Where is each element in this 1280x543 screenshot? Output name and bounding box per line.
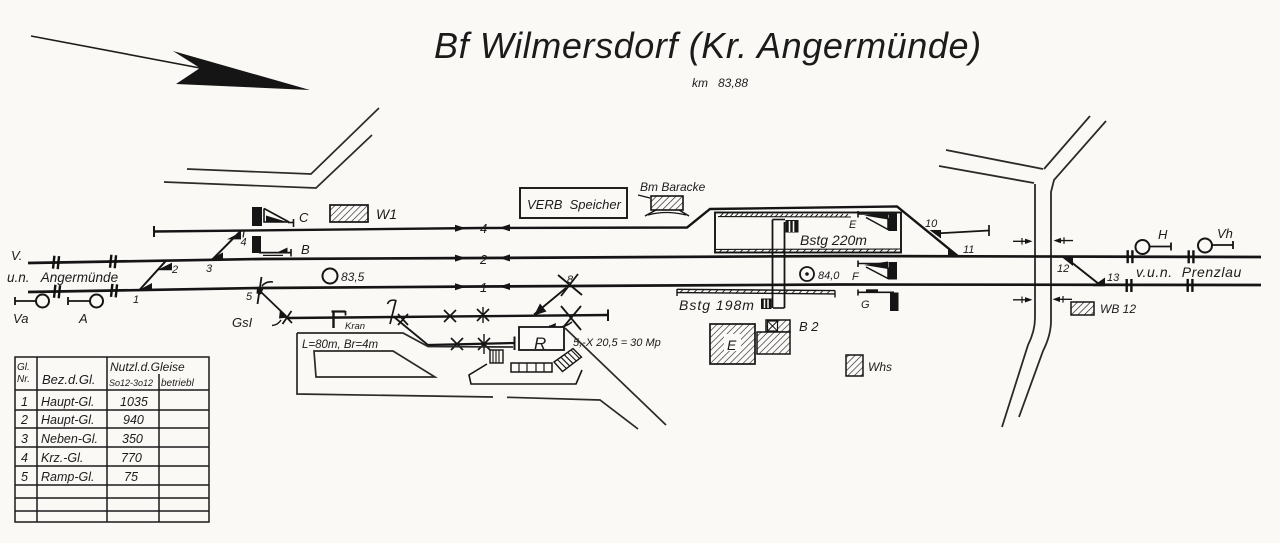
svg-text:G: G	[861, 299, 870, 311]
svg-text:Ramp-Gl.: Ramp-Gl.	[41, 470, 94, 484]
svg-text:Haupt-Gl.: Haupt-Gl.	[41, 413, 95, 427]
svg-text:Bf Wilmersdorf (Kr. Angermünde: Bf Wilmersdorf (Kr. Angermünde)	[434, 25, 982, 66]
svg-text:4: 4	[241, 237, 247, 249]
svg-text:13: 13	[1107, 272, 1120, 284]
svg-text:Gl.: Gl.	[17, 362, 30, 373]
svg-text:R: R	[534, 334, 546, 353]
svg-text:1035: 1035	[120, 395, 148, 409]
svg-text:3: 3	[21, 432, 28, 446]
svg-text:v.u.n. Prenzlau: v.u.n. Prenzlau	[1136, 264, 1242, 280]
svg-text:1: 1	[21, 395, 28, 409]
svg-text:E: E	[849, 219, 857, 231]
svg-text:10: 10	[925, 218, 938, 230]
svg-text:E: E	[727, 337, 737, 353]
svg-text:5: 5	[246, 291, 253, 303]
svg-text:1: 1	[133, 294, 139, 306]
svg-text:km 83,88: km 83,88	[692, 76, 748, 90]
svg-text:4: 4	[480, 221, 487, 236]
svg-text:Bez.d.Gl.: Bez.d.Gl.	[42, 372, 95, 387]
svg-text:H: H	[1158, 227, 1168, 242]
svg-text:350: 350	[122, 432, 143, 446]
svg-text:1: 1	[480, 280, 487, 295]
svg-text:Nr.: Nr.	[17, 374, 30, 385]
svg-text:2: 2	[20, 413, 28, 427]
svg-text:L=80m, Br=4m: L=80m, Br=4m	[302, 339, 378, 351]
svg-text:A: A	[78, 311, 88, 326]
svg-text:So12-3o12: So12-3o12	[109, 378, 153, 388]
svg-text:5: 5	[21, 470, 28, 484]
svg-text:Bstg 198m: Bstg 198m	[679, 297, 755, 313]
svg-text:11: 11	[963, 244, 974, 256]
svg-text:2: 2	[479, 252, 488, 267]
svg-text:Haupt-Gl.: Haupt-Gl.	[41, 395, 95, 409]
svg-text:W1: W1	[376, 206, 397, 222]
svg-text:2: 2	[171, 264, 178, 276]
svg-text:5,-X 20,5 = 30 Mp: 5,-X 20,5 = 30 Mp	[573, 337, 661, 349]
svg-text:u.n. Angermünde: u.n. Angermünde	[7, 270, 118, 285]
svg-text:770: 770	[121, 451, 142, 465]
svg-text:75: 75	[124, 470, 138, 484]
svg-text:3: 3	[206, 263, 213, 275]
svg-text:84,0: 84,0	[818, 270, 840, 282]
svg-text:V.: V.	[11, 248, 22, 263]
svg-text:Vh: Vh	[1217, 226, 1233, 241]
svg-text:C: C	[299, 210, 309, 225]
svg-text:Neben-Gl.: Neben-Gl.	[41, 432, 98, 446]
svg-text:Krz.-Gl.: Krz.-Gl.	[41, 451, 83, 465]
svg-text:4: 4	[21, 451, 28, 465]
svg-text:Kran: Kran	[345, 321, 365, 332]
svg-text:B 2: B 2	[799, 319, 819, 334]
svg-text:Va: Va	[13, 311, 28, 326]
svg-text:Bstg 220m: Bstg 220m	[800, 232, 867, 248]
svg-text:WB 12: WB 12	[1100, 302, 1136, 316]
svg-text:12: 12	[1057, 263, 1069, 275]
svg-text:Whs: Whs	[868, 360, 892, 374]
svg-text:8: 8	[567, 274, 574, 286]
svg-text:betriebl: betriebl	[161, 378, 195, 389]
svg-text:GsI: GsI	[232, 315, 253, 330]
svg-text:940: 940	[123, 413, 144, 427]
svg-text:B: B	[301, 242, 310, 257]
svg-text:Nutzl.d.Gleise: Nutzl.d.Gleise	[110, 360, 185, 374]
svg-text:Bm Baracke: Bm Baracke	[640, 180, 706, 194]
svg-text:VERB Speicher: VERB Speicher	[527, 197, 622, 212]
svg-text:83,5: 83,5	[341, 270, 365, 284]
